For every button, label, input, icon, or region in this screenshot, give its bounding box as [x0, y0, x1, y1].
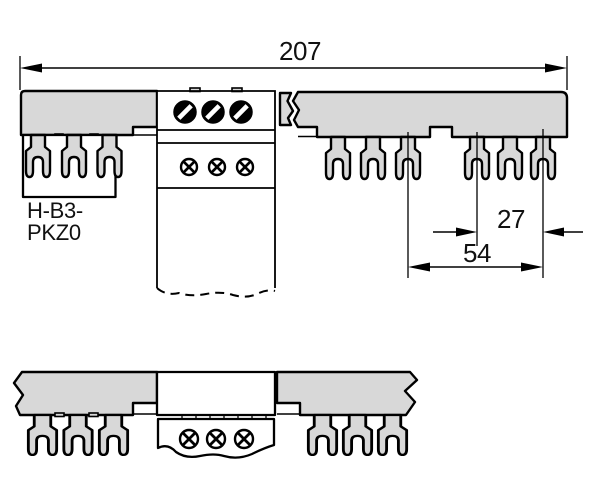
part-label-line2: PKZ0 [27, 220, 81, 245]
phillips-screw-icon [207, 430, 225, 448]
fork-terminal [64, 415, 92, 455]
terminal-cover [158, 419, 274, 458]
technical-drawing-page: 207 27 54 H-B3- PKZ0 [0, 0, 600, 498]
arrowhead-left [543, 228, 564, 237]
mounting-tab [55, 413, 64, 417]
phillips-screw-icon [181, 159, 197, 175]
fork-terminal [308, 415, 336, 455]
part-label: H-B3- PKZ0 [27, 198, 83, 245]
busbar-right-segment [277, 372, 417, 415]
mounting-tab [89, 413, 98, 417]
phillips-screw-icon [235, 430, 253, 448]
dimension-value: 207 [279, 36, 321, 66]
phillips-screw-icon [209, 159, 225, 175]
busbar-body [293, 92, 567, 137]
busbar-break-sliver [280, 93, 293, 125]
busbar-left-segment [14, 372, 157, 417]
fork-terminal [28, 415, 56, 455]
bottom-view [14, 372, 417, 458]
phillips-screw-icon [237, 159, 253, 175]
busbar-left-segment [21, 91, 157, 138]
fork-terminal [99, 415, 127, 455]
arrowhead-right [545, 64, 567, 73]
arrowhead-right [521, 263, 543, 272]
fork-terminal [343, 415, 371, 455]
dimension-pole-pitch: 27 [408, 129, 583, 278]
breaker-break-line [157, 288, 275, 297]
terminal-screw-icon [175, 102, 196, 123]
arrowhead-left [408, 263, 430, 272]
arrowhead-right [456, 228, 477, 237]
fork-terminal [498, 137, 522, 179]
terminal-screw-icon [231, 102, 252, 123]
dimension-overall-width: 207 [20, 36, 567, 90]
fork-terminal [378, 415, 406, 455]
fork-terminal [361, 137, 385, 179]
busbar-right-segment [293, 92, 567, 137]
arrowhead-left [20, 64, 42, 73]
circuit-breaker-front [157, 88, 275, 297]
dimension-device-pitch: 54 [408, 238, 543, 272]
busbar-body [21, 91, 157, 135]
dimension-value: 27 [497, 204, 525, 234]
fork-terminal [326, 137, 350, 179]
dimension-value: 54 [463, 238, 491, 268]
phillips-screw-icon [180, 430, 198, 448]
busbar-body [14, 372, 157, 415]
busbar-body [277, 372, 417, 415]
breaker-housing-outline [157, 372, 275, 415]
terminal-screw-icon [203, 102, 224, 123]
busbar-dimension-drawing: 207 27 54 H-B3- PKZ0 [0, 0, 600, 498]
